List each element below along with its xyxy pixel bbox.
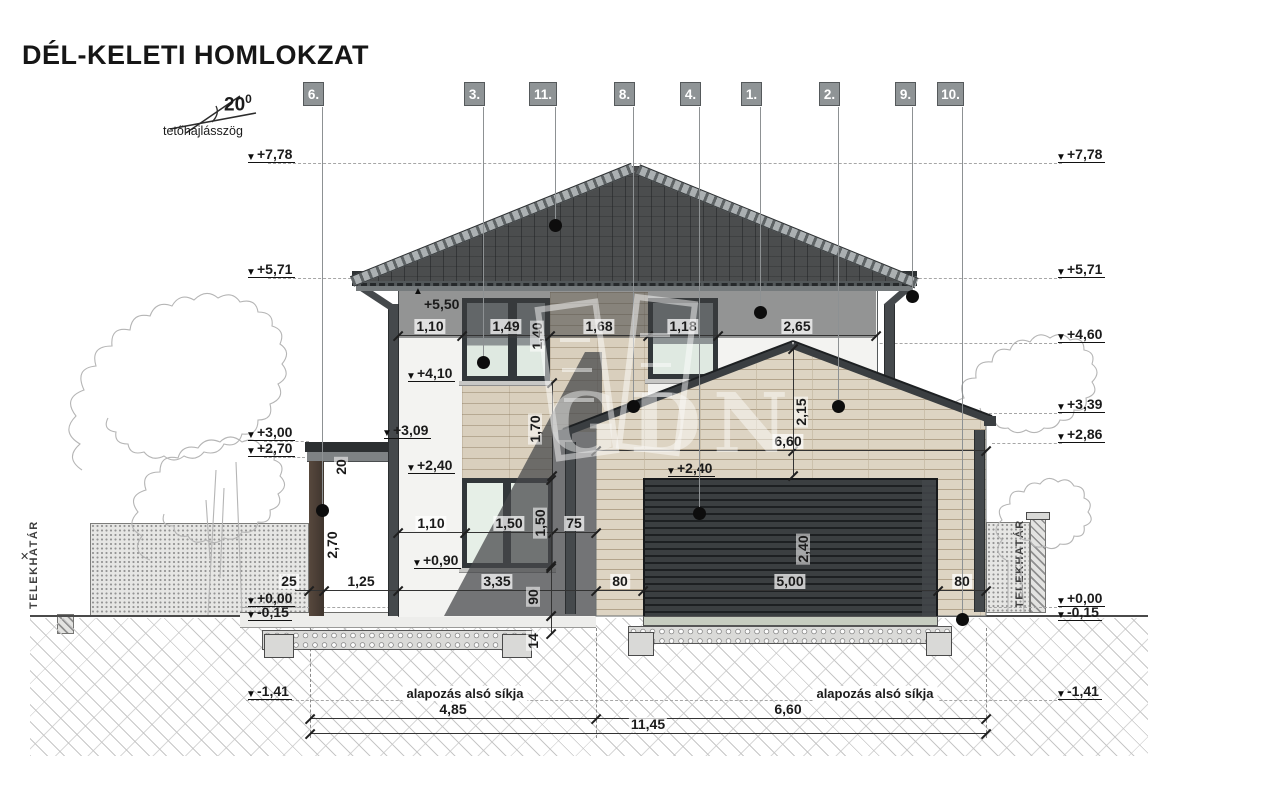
level-triangle-icon: ▼ xyxy=(1056,403,1066,413)
dimension-label-vertical: 90 xyxy=(526,587,540,607)
marker-dot xyxy=(754,306,767,319)
level-triangle-icon: ▼ xyxy=(406,464,416,474)
elevation-level-left: +7,78▼ xyxy=(248,146,295,163)
level-triangle-icon: ▼ xyxy=(1056,433,1066,443)
position-marker: 2. xyxy=(819,82,840,106)
marker-leader-line xyxy=(760,107,761,312)
elevation-level-right: +3,39▼ xyxy=(1058,396,1105,413)
level-triangle-icon: ▼ xyxy=(1056,611,1066,621)
level-triangle-icon: ▼ xyxy=(246,268,256,278)
garage-foundation-strip xyxy=(628,626,952,644)
elevation-level-wall: +4,10▼ xyxy=(408,365,455,382)
marker-leader-line xyxy=(699,107,700,513)
level-triangle-icon: ▼ xyxy=(1056,690,1066,700)
dimension-label-vertical: 14 xyxy=(526,631,540,651)
elevation-level-wall: +2,40▼ xyxy=(408,457,455,474)
level-triangle-icon: ▼ xyxy=(382,429,392,439)
dimension-label: 1,10 xyxy=(414,319,445,334)
elevation-level-left: +2,70▼ xyxy=(248,440,295,457)
dimension-label: 75 xyxy=(564,516,584,531)
dimension-line xyxy=(398,532,596,533)
garage-footing-right xyxy=(926,632,952,656)
position-marker: 10. xyxy=(937,82,964,106)
dimension-label-vertical: 2,70 xyxy=(325,529,339,560)
level-triangle-icon: ▼ xyxy=(1056,268,1066,278)
level-triangle-icon: ▼ xyxy=(406,372,416,382)
garage-door-edge-highlight xyxy=(922,480,936,618)
dimension-line xyxy=(398,335,876,336)
position-marker: 6. xyxy=(303,82,324,106)
position-marker: 3. xyxy=(464,82,485,106)
marker-dot xyxy=(477,356,490,369)
dimension-label: 4,85 xyxy=(437,702,468,717)
marker-leader-line xyxy=(838,107,839,406)
dimension-label: 6,60 xyxy=(772,434,803,449)
elevation-level-wall: +2,40▼ xyxy=(668,460,715,477)
level-up-triangle-icon: ▲ xyxy=(413,287,423,297)
elevation-level-left: -0,15▼ xyxy=(248,604,292,621)
elevation-level-right: +5,71▼ xyxy=(1058,261,1105,278)
marker-dot xyxy=(627,400,640,413)
marker-leader-line xyxy=(483,107,484,362)
dimension-label: 25 xyxy=(279,574,299,589)
dimension-label: 1,25 xyxy=(345,574,376,589)
position-marker: 1. xyxy=(741,82,762,106)
level-triangle-icon: ▼ xyxy=(246,690,256,700)
elevation-level-wall: +3,09▼ xyxy=(384,422,431,439)
dimension-label-vertical: 2,40 xyxy=(796,533,810,564)
dimension-label: 1,50 xyxy=(493,516,524,531)
garage-right-downspout xyxy=(974,430,985,612)
elevation-level-right: +7,78▼ xyxy=(1058,146,1105,163)
marker-dot xyxy=(832,400,845,413)
level-triangle-icon: ▼ xyxy=(246,153,256,163)
marker-leader-line xyxy=(322,107,323,510)
marker-leader-line xyxy=(555,107,556,225)
marker-dot xyxy=(906,290,919,303)
dimension-label: 2,65 xyxy=(781,319,812,334)
elevation-level-left: +3,00▼ xyxy=(248,424,295,441)
position-marker: 9. xyxy=(895,82,916,106)
level-triangle-icon: ▼ xyxy=(1056,333,1066,343)
garage-footing-left xyxy=(628,632,654,656)
dimension-label: 80 xyxy=(610,574,630,589)
elevation-level-right: +4,60▼ xyxy=(1058,326,1105,343)
dimension-label-vertical: 1,70 xyxy=(528,413,542,444)
dimension-label: 1,18 xyxy=(667,319,698,334)
dimension-label: 1,10 xyxy=(415,516,446,531)
dimension-label-vertical: 1,50 xyxy=(533,507,547,538)
elevation-level-right: -0,15▼ xyxy=(1058,604,1102,621)
level-triangle-icon: ▼ xyxy=(246,611,256,621)
elevation-level-wall: +0,90▼ xyxy=(414,552,461,569)
dimension-label-vertical: 20 xyxy=(334,457,348,477)
elevation-level-left: +5,71▼ xyxy=(248,261,295,278)
marker-dot xyxy=(549,219,562,232)
dimension-label-vertical: 1,40 xyxy=(530,320,544,351)
elevation-drawing: DÉL-KELETI HOMLOKZAT 200 tetőhajlásszög … xyxy=(0,0,1280,792)
dimension-line-vertical xyxy=(552,383,553,476)
dimension-line xyxy=(310,733,986,734)
marker-leader-line xyxy=(962,107,963,619)
dimension-label: 1,68 xyxy=(583,319,614,334)
dimension-line-vertical xyxy=(551,568,552,616)
position-marker: 4. xyxy=(680,82,701,106)
marker-leader-line xyxy=(912,107,913,296)
dimension-label: 1,49 xyxy=(490,319,521,334)
level-triangle-icon: ▼ xyxy=(666,467,676,477)
elevation-level-right: +2,86▼ xyxy=(1058,426,1105,443)
elevation-level-right: -1,41▼ xyxy=(1058,683,1102,700)
level-triangle-icon: ▼ xyxy=(1056,153,1066,163)
level-triangle-icon: ▼ xyxy=(246,447,256,457)
position-marker: 8. xyxy=(614,82,635,106)
elevation-level-left: -1,41▼ xyxy=(248,683,292,700)
garage-door xyxy=(643,478,938,620)
dimension-label: 3,35 xyxy=(481,574,512,589)
level-triangle-icon: ▼ xyxy=(412,559,422,569)
marker-dot xyxy=(316,504,329,517)
dimension-label: 6,60 xyxy=(772,702,803,717)
dimension-label: 11,45 xyxy=(629,717,667,732)
dimension-label: 5,00 xyxy=(774,574,805,589)
marker-dot xyxy=(693,507,706,520)
marker-dot xyxy=(956,613,969,626)
elevation-level-wall: +5,50▲ xyxy=(415,296,462,313)
garage-threshold xyxy=(643,616,938,626)
dimension-line-vertical xyxy=(551,480,552,566)
dimension-label-vertical: 2,15 xyxy=(794,396,808,427)
position-marker: 11. xyxy=(529,82,557,106)
marker-leader-line xyxy=(633,107,634,406)
